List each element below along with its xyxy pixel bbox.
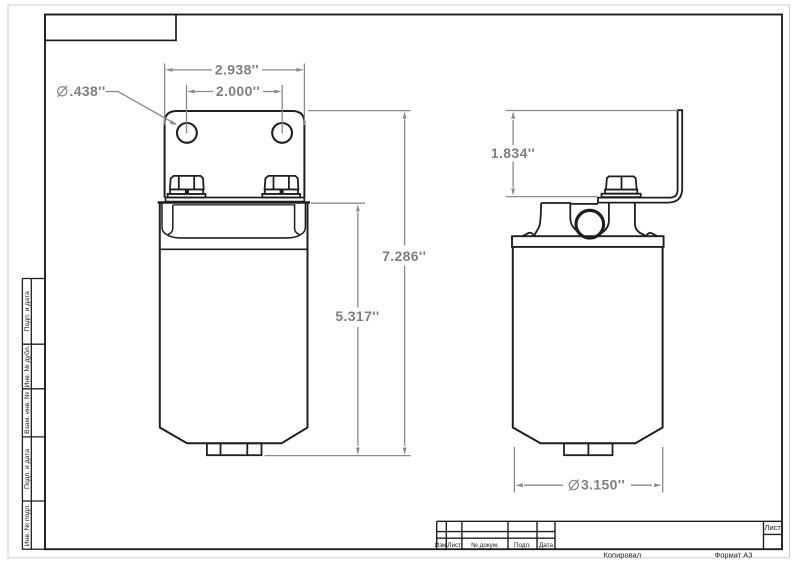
svg-text:Инв. № подл.: Инв. № подл. bbox=[24, 504, 31, 546]
svg-text:3.150'': 3.150'' bbox=[581, 477, 625, 493]
svg-text:Лист: Лист bbox=[765, 523, 782, 532]
svg-text:Дата: Дата bbox=[539, 542, 553, 549]
svg-text:Инв. № дубл.: Инв. № дубл. bbox=[23, 345, 31, 387]
svg-text:.438'': .438'' bbox=[70, 83, 106, 99]
svg-text:Лист: Лист bbox=[447, 542, 461, 549]
svg-text:5.317'': 5.317'' bbox=[335, 308, 379, 324]
svg-text:Подп. и дата: Подп. и дата bbox=[24, 291, 31, 331]
svg-text:Подп.: Подп. bbox=[514, 542, 531, 549]
svg-text:Изм.: Изм. bbox=[435, 542, 449, 549]
svg-text:Подп. и дата: Подп. и дата bbox=[24, 449, 31, 489]
svg-text:Копировал: Копировал bbox=[604, 551, 642, 560]
svg-text:7.286'': 7.286'' bbox=[382, 248, 426, 264]
svg-text:№ докум.: № докум. bbox=[471, 542, 499, 549]
svg-text:2.000'': 2.000'' bbox=[216, 83, 260, 99]
svg-text:Формат А3: Формат А3 bbox=[715, 551, 753, 560]
svg-text:1.834'': 1.834'' bbox=[491, 145, 535, 161]
svg-text:Взам. инв. №: Взам. инв. № bbox=[24, 392, 31, 434]
svg-text:2.938'': 2.938'' bbox=[215, 62, 259, 78]
